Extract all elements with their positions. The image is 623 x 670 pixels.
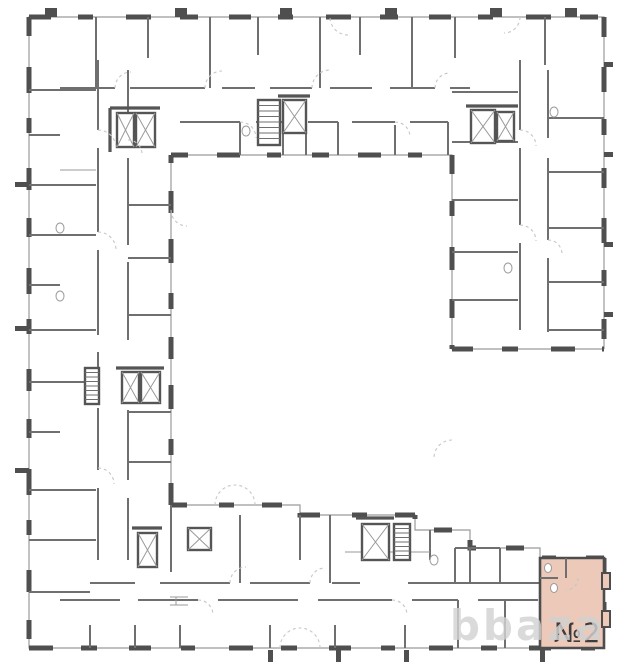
- door-arc: [504, 17, 520, 33]
- door-arc: [205, 71, 222, 88]
- door-arc: [215, 485, 235, 505]
- door-arc: [392, 600, 407, 615]
- door-arc: [198, 600, 213, 615]
- watermark-text: bbaza: [450, 601, 606, 650]
- elevator-icon: [471, 110, 514, 143]
- toilet-icon: [56, 223, 64, 233]
- door-arc: [235, 485, 255, 505]
- toilet-icon: [56, 291, 64, 301]
- floor-plan: №2 bbaza: [0, 0, 623, 670]
- door-arc: [310, 568, 325, 583]
- door-arc: [230, 567, 246, 583]
- door-arc: [330, 17, 348, 35]
- stairs: [85, 100, 410, 560]
- door-arc: [300, 628, 320, 648]
- interior-walls: [29, 17, 604, 648]
- door-arc: [280, 628, 300, 648]
- stairs-icon: [394, 524, 410, 560]
- door-arc: [395, 122, 410, 137]
- toilet-icon: [504, 263, 512, 273]
- stairs-icon: [258, 100, 280, 145]
- elevator-icon: [122, 372, 160, 403]
- floor-plan-svg: №2 bbaza: [0, 0, 623, 670]
- window-stubs: [15, 8, 613, 662]
- door-arc: [548, 240, 562, 254]
- toilet-icon: [551, 584, 558, 593]
- exterior-window-lines: [29, 17, 604, 648]
- door-arc: [435, 73, 450, 88]
- fixtures: [56, 107, 558, 565]
- door-arc: [98, 468, 114, 484]
- stairs-icon: [85, 368, 99, 404]
- toilet-icon: [242, 126, 250, 136]
- door-arc: [98, 130, 116, 148]
- elevator-icon: [138, 533, 157, 567]
- exterior-wall-piers: [29, 17, 604, 648]
- toilet-icon: [550, 107, 558, 117]
- elevator-icon: [188, 528, 211, 550]
- elevator-icon: [283, 100, 306, 133]
- door-arc: [98, 232, 116, 250]
- toilet-icon: [430, 555, 438, 565]
- toilet-icon: [545, 564, 552, 573]
- door-arc: [434, 440, 452, 458]
- door-arc: [520, 130, 536, 146]
- door-arc: [520, 225, 536, 241]
- elevator-icon: [362, 524, 389, 560]
